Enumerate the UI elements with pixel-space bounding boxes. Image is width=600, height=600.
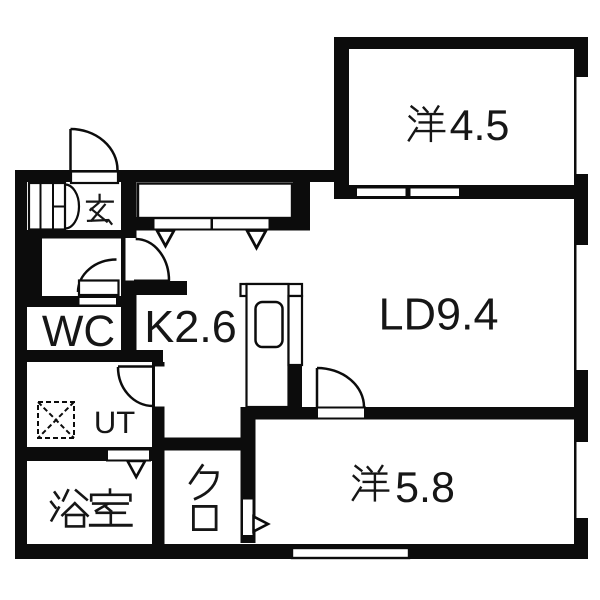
svg-text:5.8: 5.8	[395, 464, 455, 512]
svg-text:WC: WC	[42, 307, 115, 356]
svg-text:LD9.4: LD9.4	[378, 288, 498, 339]
svg-text:4.5: 4.5	[450, 102, 510, 150]
svg-text:K2.6: K2.6	[144, 301, 237, 352]
svg-text:UT: UT	[94, 405, 135, 440]
